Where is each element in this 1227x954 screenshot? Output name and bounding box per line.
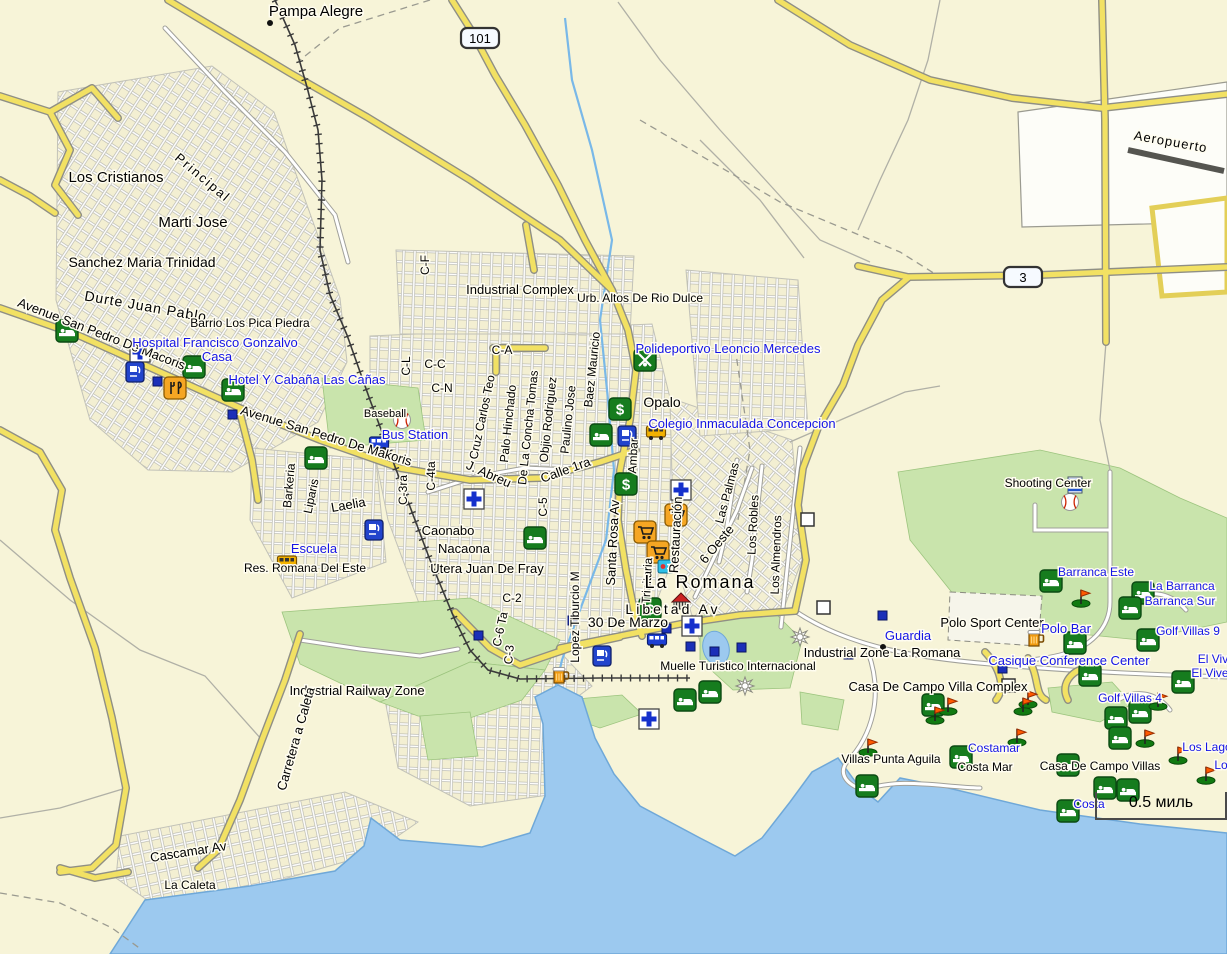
lodging-icon[interactable] (1119, 597, 1141, 619)
map-label: La Caleta (164, 878, 216, 892)
svg-text:$: $ (622, 477, 631, 494)
poi-square-icon[interactable] (710, 647, 719, 656)
map-label: C-3ra (396, 475, 410, 505)
map-label: C-4ta (424, 461, 438, 491)
map-label: La Romana (644, 572, 755, 592)
map-label: Utera Juan De Fray (430, 561, 544, 576)
map-label: Baseball (364, 408, 406, 420)
map-label: C-5 (536, 497, 550, 517)
map-label: Caonabo (422, 523, 475, 538)
map-label: Nacaona (438, 541, 491, 556)
map-label: C-3 (501, 644, 517, 665)
map-label: Costa (1073, 797, 1105, 811)
lodging-icon[interactable] (590, 424, 612, 446)
map-label: C-N (431, 381, 452, 395)
svg-text:101: 101 (469, 31, 491, 46)
map-label: Guardia (885, 628, 932, 643)
map-canvas[interactable]: $ $ $ (0, 0, 1227, 954)
highway-shield: 101 (461, 28, 499, 48)
map-label: El Vive (1191, 666, 1227, 680)
map-label: C-C (424, 357, 446, 371)
map-label: Industrial Zone La Romana (804, 645, 962, 660)
map-label: Los Lago (1182, 740, 1227, 754)
lodging-icon[interactable] (1109, 727, 1131, 749)
map-label: Polo Sport Center (940, 615, 1044, 630)
fuel-icon[interactable] (126, 362, 144, 382)
first-aid-icon[interactable] (464, 489, 484, 509)
map-label: Muelle Turistico Internacional (660, 659, 815, 673)
poi-square-icon[interactable] (737, 643, 746, 652)
bank-icon[interactable]: $ (615, 473, 637, 495)
map-label: Hospital Francisco Gonzalvo (132, 335, 297, 350)
map-label: Industrial Complex (466, 282, 574, 297)
map-label: Escuela (291, 541, 338, 556)
map-label: C-2 (502, 591, 522, 605)
map-label: C-F (418, 255, 432, 275)
map-label: Costamar (968, 741, 1020, 755)
map-label: Opalo (643, 394, 681, 410)
map-label: Casa De Campo Villas (1040, 759, 1161, 773)
poi-square-icon[interactable] (228, 410, 237, 419)
baseball-icon[interactable] (1062, 494, 1079, 511)
map-label: El Viv (1198, 652, 1227, 666)
map-label: Casique Conference Center (988, 653, 1150, 668)
lodging-icon[interactable] (1094, 777, 1116, 799)
map-label: Golf Villas 4 (1098, 691, 1162, 705)
junction-box-icon[interactable] (817, 601, 830, 614)
first-aid-icon[interactable] (639, 709, 659, 729)
map-label: C-A (492, 343, 513, 357)
map-label: Casa (202, 349, 233, 364)
map-label: Urb. Altos De Rio Dulce (577, 291, 703, 305)
map-label: Colegio Inmaculada Concepcion (648, 416, 835, 431)
map-label: Shooting Center (1005, 476, 1092, 490)
map-label: Villas Punta Aguila (841, 752, 941, 766)
lodging-icon[interactable] (699, 681, 721, 703)
map-label: C-L (399, 356, 413, 376)
map-label: Lopez Tiburcio M (568, 571, 582, 662)
map-label: Ambar (625, 438, 641, 474)
lodging-icon[interactable] (1117, 779, 1139, 801)
map-label: Pampa Alegre (269, 3, 363, 20)
map-label: Res. Romana Del Este (244, 561, 366, 575)
map-label: Libetad Av (625, 601, 720, 617)
map-label: Marti Jose (158, 214, 227, 231)
map-label: Hotel Y Cabaña Las Cañas (228, 372, 386, 387)
poi-square-icon[interactable] (878, 611, 887, 620)
map-label: Los Almendros (768, 515, 785, 595)
map-label: Barranca Sur (1145, 594, 1216, 608)
map-label: Barranca Este (1058, 565, 1134, 579)
highway-shield: 3 (1004, 267, 1042, 287)
map-label: Polo Bar (1041, 621, 1092, 636)
lodging-icon[interactable] (1105, 707, 1127, 729)
map-viewport[interactable]: $ $ $ (0, 0, 1227, 954)
airport-apron (1152, 198, 1227, 296)
junction-box-icon[interactable] (801, 513, 814, 526)
map-label: La Barranca (1149, 579, 1215, 593)
bank-icon[interactable]: $ (609, 398, 631, 420)
map-label: Casa De Campo Villa Complex (849, 679, 1028, 694)
fuel-icon[interactable] (365, 520, 383, 540)
restaurant-icon[interactable] (164, 377, 186, 399)
svg-text:3: 3 (1019, 270, 1026, 285)
poi-square-icon[interactable] (474, 631, 483, 640)
first-aid-icon[interactable] (682, 616, 702, 636)
map-label: Barrio Los Pica Piedra (190, 316, 310, 330)
map-label: Golf Villas 9 (1156, 624, 1220, 638)
map-label: Bus Station (382, 427, 449, 442)
lodging-icon[interactable] (856, 775, 878, 797)
lodging-icon[interactable] (524, 527, 546, 549)
map-label: Sanchez Maria Trinidad (68, 254, 215, 270)
lodging-icon[interactable] (305, 447, 327, 469)
poi-square-icon[interactable] (686, 642, 695, 651)
map-label: Costa Mar (957, 760, 1012, 774)
city-dot (267, 20, 273, 26)
shopping-icon[interactable] (634, 521, 656, 543)
map-label: Polideportivo Leoncio Mercedes (636, 341, 821, 356)
svg-text:$: $ (616, 402, 625, 419)
lodging-icon[interactable] (674, 689, 696, 711)
map-label: Los Cristianos (68, 169, 163, 186)
fuel-icon[interactable] (593, 646, 611, 666)
poi-square-icon[interactable] (153, 377, 162, 386)
map-label: Lo (1214, 758, 1227, 772)
